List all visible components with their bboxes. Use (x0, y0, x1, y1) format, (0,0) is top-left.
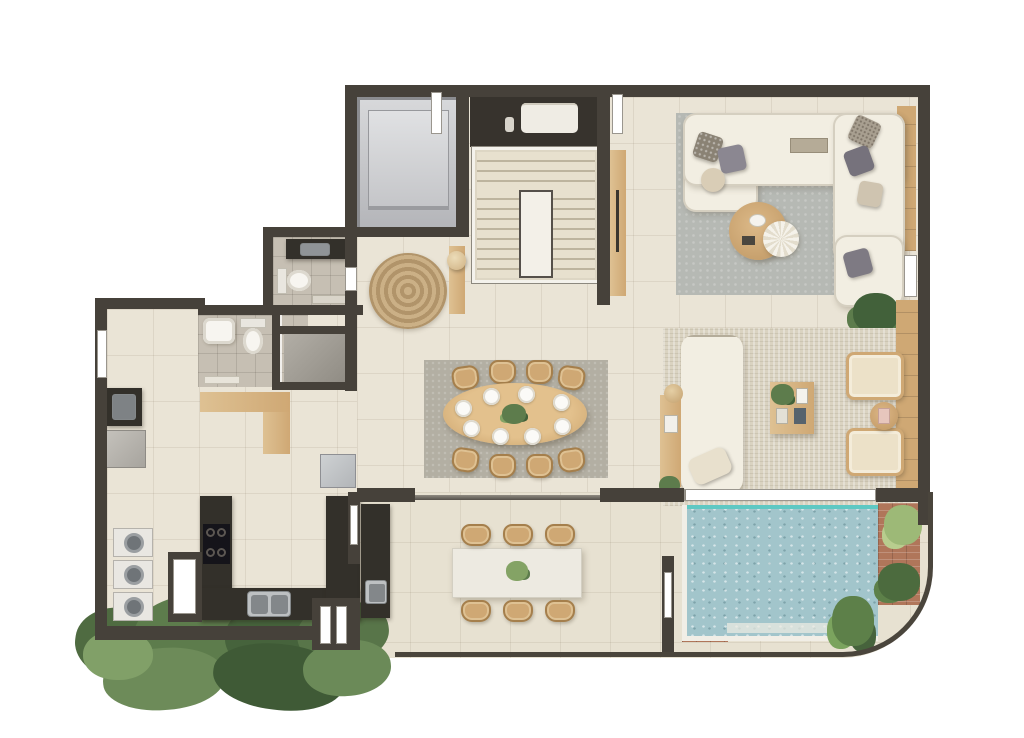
wall-hall-left-b (345, 291, 357, 391)
window-right-living (904, 255, 917, 297)
pool-waterline (687, 505, 878, 509)
elevator-doors (368, 206, 449, 210)
window-terrace-left (350, 505, 358, 545)
wall-storage-bottom (276, 382, 356, 390)
table-book (776, 408, 788, 424)
storage-room-floor (284, 334, 352, 382)
staircase (472, 147, 600, 283)
coffee-table-dish (749, 214, 766, 227)
terrace-chair (461, 524, 491, 546)
terrace-chair (545, 600, 575, 622)
linen-stack (521, 103, 578, 133)
kitchen-wood-counter-top (200, 392, 290, 412)
laundry-sink (112, 394, 136, 420)
place-setting (483, 388, 500, 405)
stair-flight-left (477, 190, 519, 278)
sink-basin (251, 595, 268, 614)
dining-centerpiece (502, 404, 526, 424)
stair-upper-treads (477, 152, 595, 190)
pillow (717, 144, 748, 175)
hall-console-seam (616, 190, 619, 252)
wall-terrace-sep-c (876, 488, 930, 502)
wall-elevator-bottom (345, 227, 467, 237)
jute-rug (369, 253, 447, 329)
sink-basin (271, 595, 288, 614)
burner (206, 528, 215, 537)
window-terrace-slit (336, 606, 347, 644)
pool-plant-top (884, 505, 922, 545)
lounge-armchair-1 (846, 352, 904, 400)
terrace-chair (461, 600, 491, 622)
terrace-chair (503, 600, 533, 622)
place-setting (553, 394, 570, 411)
pool-plant-bottom (832, 596, 874, 646)
living-corner-plant (853, 293, 899, 333)
wall-leftwing-top (95, 298, 205, 309)
washer-unit (113, 560, 153, 589)
cooktop (203, 524, 230, 564)
sink-basin (369, 584, 385, 602)
place-setting (492, 428, 509, 445)
window-top-2 (612, 94, 623, 134)
glass-door-pool-lounge (684, 489, 876, 501)
wall-bathroom-top (198, 305, 363, 315)
wall-hall-left-a (345, 237, 357, 267)
lounge-armchair-2 (846, 428, 904, 476)
pillow (856, 180, 884, 208)
place-setting (455, 400, 472, 417)
washer-door (124, 533, 144, 553)
pool-plant-mid (878, 563, 920, 601)
wall-powder-top (263, 227, 357, 237)
coffee-table-book (742, 236, 755, 245)
window-left-wing (97, 330, 107, 378)
window-terrace-slit (320, 606, 331, 644)
washer-unit (113, 528, 153, 557)
gourmet-sink (365, 580, 387, 604)
place-setting (554, 418, 571, 435)
washer-door (124, 565, 144, 585)
window-top-1 (431, 92, 442, 134)
wall-powder-left (263, 227, 273, 315)
pool-step (727, 623, 837, 633)
place-setting (524, 428, 541, 445)
terrace-chair (503, 524, 533, 546)
stair-flight-right (553, 190, 595, 278)
washer-door (124, 597, 144, 617)
powder-sink (300, 243, 330, 256)
wall-terrace-sep-b (600, 488, 684, 502)
window-pool-left (664, 572, 672, 618)
wall-stair-right (597, 97, 610, 305)
dining-chair (526, 454, 553, 478)
burner (206, 548, 215, 557)
wall-storage-top (276, 326, 354, 334)
glass-sliding-door (415, 495, 600, 500)
wall-elevator-right (456, 95, 469, 237)
lounge-stool (664, 384, 683, 403)
place-setting (463, 420, 480, 437)
closet-bottle (505, 117, 514, 132)
kitchen-wood-counter-side (263, 412, 290, 454)
dining-chair (489, 360, 516, 384)
table-book (794, 408, 806, 424)
table-book (796, 388, 808, 404)
wall-storage-left (272, 315, 280, 390)
burner (217, 548, 226, 557)
floor-plan-canvas (0, 0, 1024, 738)
dining-chair (489, 454, 516, 478)
foyer-stool (447, 251, 466, 270)
bathroom-toilet-bowl (243, 328, 263, 354)
powder-towel-shelf (312, 295, 346, 304)
dining-chair (526, 360, 553, 384)
powder-toilet-bowl (287, 270, 311, 291)
pouf (763, 221, 799, 257)
washer-unit (113, 592, 153, 621)
laundry-door (173, 559, 196, 614)
kitchen-sink (247, 591, 291, 617)
powder-toilet-tank (277, 268, 287, 294)
stair-void (519, 190, 553, 278)
wall-bottom-left (95, 626, 347, 640)
burner (217, 528, 226, 537)
bathroom-toilet-tank (240, 318, 266, 328)
bathroom-towel (204, 376, 240, 384)
bathroom-sink (203, 318, 235, 344)
pillow (701, 168, 725, 192)
wall-terrace-sep-a (357, 488, 415, 502)
lounge-side-console (660, 395, 681, 487)
terrace-chair (545, 524, 575, 546)
door-opening-hall (345, 267, 357, 291)
table-plant (771, 384, 794, 405)
terrace-centerpiece (506, 561, 528, 581)
refrigerator (320, 454, 356, 488)
laundry-appliance (106, 430, 146, 468)
place-setting (518, 386, 535, 403)
sofa-tray (790, 138, 828, 153)
wall-right (918, 85, 930, 525)
side-table-book (878, 408, 890, 424)
wall-left-elevator (345, 85, 357, 237)
console-book (664, 415, 678, 433)
